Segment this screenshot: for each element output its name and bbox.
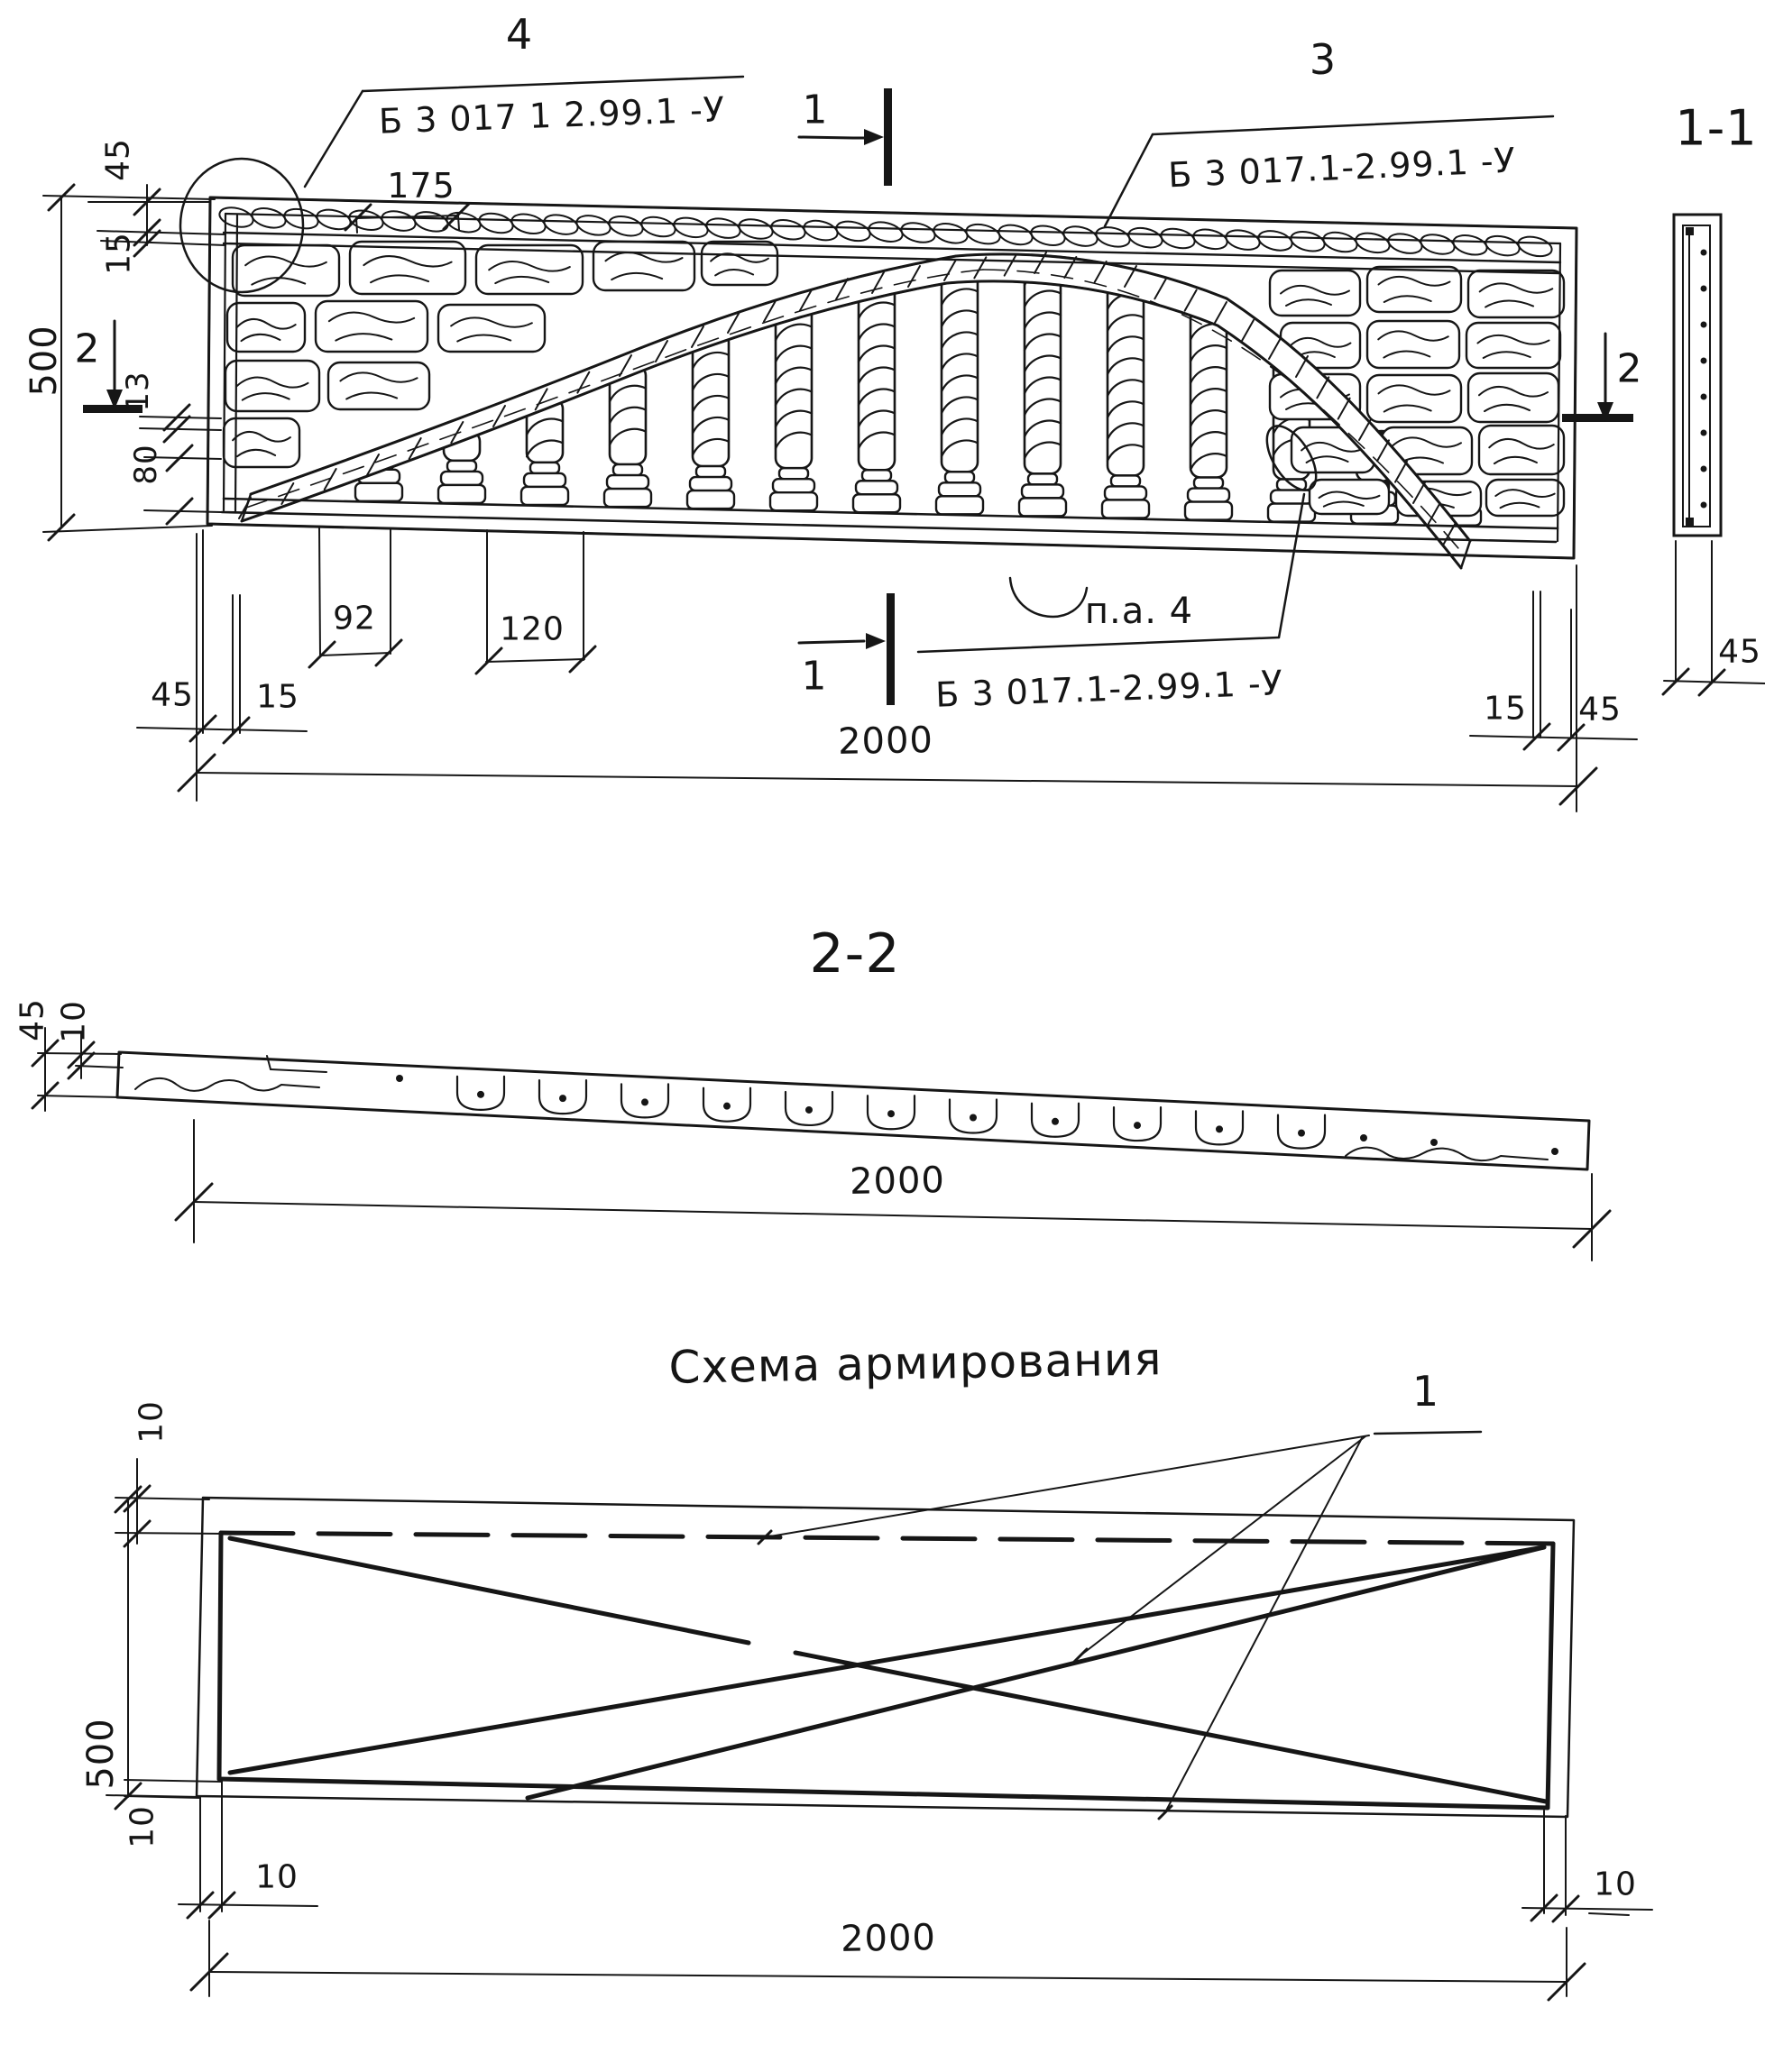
reinforcement-scheme bbox=[197, 1432, 1574, 1819]
technical-drawing: 4 Б 3 017 1 2.99.1 -У 175 1 3 Б 3 017.1-… bbox=[0, 0, 1765, 2072]
drawing-canvas bbox=[0, 0, 1765, 2072]
dim-cover-top: 10 bbox=[133, 1400, 170, 1444]
section-1-mark-bottom: 1 bbox=[802, 654, 828, 700]
dim-stone-width: 175 bbox=[387, 166, 455, 206]
dim-length-top: 2000 bbox=[838, 720, 934, 763]
section-1-1-label: 1-1 bbox=[1675, 100, 1757, 157]
dim-inset-left: 15 bbox=[256, 679, 299, 716]
dim-22-thickness: 45 bbox=[14, 998, 51, 1041]
section-2-mark-right: 2 bbox=[1617, 346, 1643, 392]
dim-edge-right: 45 bbox=[1578, 692, 1622, 729]
section-2-2-view bbox=[117, 1052, 1589, 1169]
dim-band-height: 45 bbox=[100, 138, 137, 181]
callout-4-number: 4 bbox=[506, 10, 533, 59]
dim-scheme-height: 500 bbox=[80, 1718, 122, 1789]
dim-22-length: 2000 bbox=[850, 1160, 946, 1203]
dim-inset-right: 15 bbox=[1484, 691, 1527, 728]
dim-base-height: 80 bbox=[128, 444, 164, 484]
dim-edge-left: 45 bbox=[151, 677, 194, 714]
reinforcement-title: Схема армирования bbox=[668, 1333, 1163, 1394]
section-1-1-view bbox=[1674, 215, 1721, 536]
dim-22-offset: 10 bbox=[56, 1000, 93, 1043]
dim-cover-b-left: 10 bbox=[255, 1859, 299, 1896]
dim-section-thickness: 45 bbox=[1718, 634, 1761, 671]
dim-cover-bottom: 10 bbox=[124, 1805, 161, 1848]
section-2-2-title: 2-2 bbox=[810, 922, 901, 986]
dim-baluster-gap: 92 bbox=[333, 601, 376, 637]
bar-mark-1: 1 bbox=[1412, 1367, 1439, 1416]
dim-rail-gap: 13 bbox=[120, 371, 156, 411]
dim-height: 500 bbox=[23, 325, 65, 396]
detail-ref: п.а. 4 bbox=[1085, 591, 1193, 632]
dim-scheme-length: 2000 bbox=[841, 1917, 937, 1960]
dim-cover-b-right: 10 bbox=[1594, 1866, 1637, 1903]
dim-band-gap: 15 bbox=[101, 232, 138, 275]
dim-baluster-pitch: 120 bbox=[500, 611, 565, 648]
callout-3-number: 3 bbox=[1310, 35, 1337, 84]
section-1-mark-top: 1 bbox=[803, 87, 829, 133]
section-2-mark-left: 2 bbox=[75, 326, 101, 372]
